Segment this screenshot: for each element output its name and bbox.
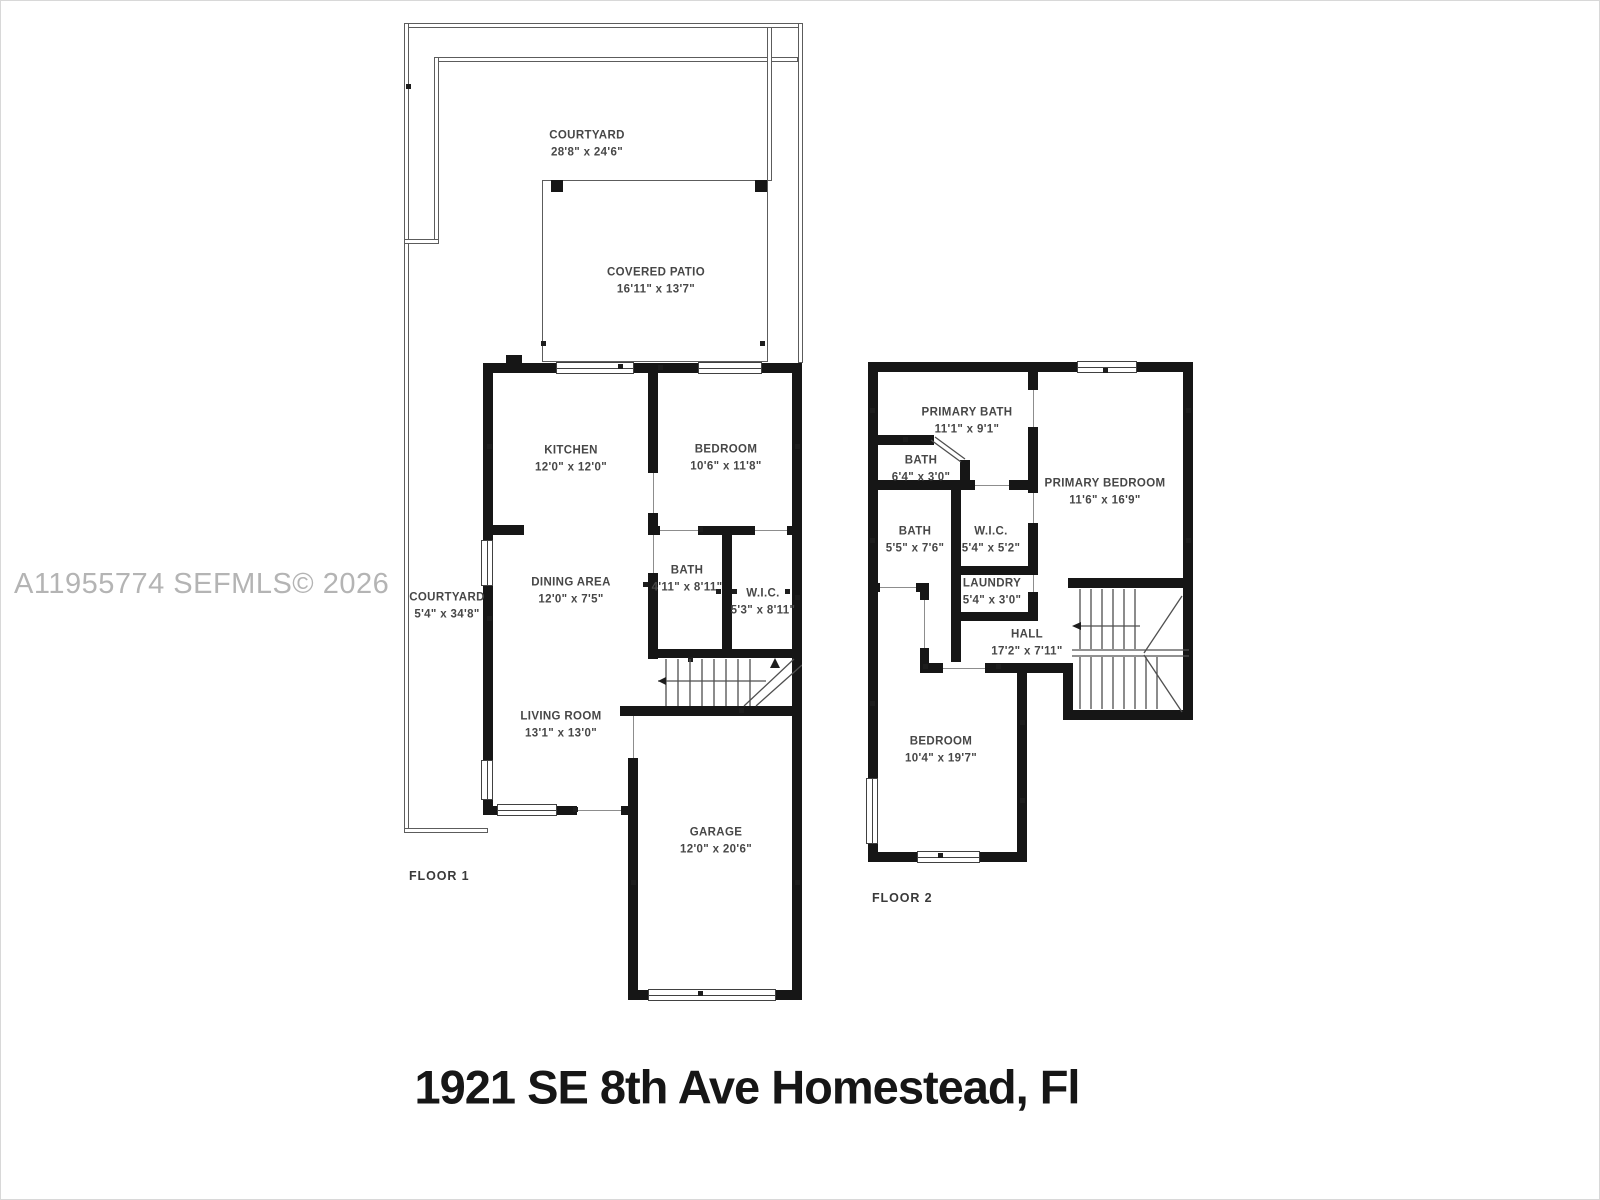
wall-segment (1068, 578, 1193, 588)
room-dims: 11'1" x 9'1" (922, 421, 1013, 438)
staircase-floor1 (656, 655, 802, 707)
door-opening (627, 716, 639, 758)
patio-post (755, 180, 767, 192)
wall-segment (506, 355, 522, 364)
room-label-kitchen: KITCHEN 12'0" x 12'0" (535, 442, 607, 475)
room-name: GARAGE (680, 824, 752, 841)
wall-segment (1028, 362, 1038, 390)
room-dims: 12'0" x 12'0" (535, 459, 607, 476)
room-dims: 17'2" x 7'11" (991, 643, 1062, 660)
wall-tick (903, 437, 908, 442)
room-label-primary-bath: PRIMARY BATH 11'1" x 9'1" (922, 404, 1013, 437)
wall-segment (792, 716, 802, 1000)
room-label-courtyard-side: COURTYARD 5'4" x 34'8" (409, 589, 485, 622)
wall-tick (618, 364, 623, 369)
room-dims: 5'4" x 34'8" (409, 606, 485, 623)
wall-tick (487, 616, 492, 621)
wall-tick (406, 84, 411, 89)
room-dims: 6'4" x 3'0" (892, 469, 951, 486)
window (866, 778, 878, 844)
door-opening (1027, 390, 1039, 427)
room-name: COURTYARD (409, 589, 485, 606)
wall-segment (1017, 663, 1027, 862)
room-label-bath-upper: BATH 6'4" x 3'0" (892, 452, 951, 485)
wall-segment (1028, 427, 1038, 493)
wall-tick (760, 341, 765, 346)
fence-line (404, 23, 409, 833)
wall-tick (870, 408, 875, 413)
room-dims: 5'5" x 7'6" (886, 540, 945, 557)
wall-tick (938, 853, 943, 858)
room-dims: 5'4" x 5'2" (962, 540, 1021, 557)
wall-tick (1186, 408, 1191, 413)
room-label-primary-bedroom: PRIMARY BEDROOM 11'6" x 16'9" (1045, 475, 1166, 508)
mls-watermark: A11955774 SEFMLS© 2026 (14, 568, 389, 601)
wall-tick (487, 444, 492, 449)
room-label-living-room: LIVING ROOM 13'1" x 13'0" (520, 708, 601, 741)
room-name: KITCHEN (535, 442, 607, 459)
patio-post (551, 180, 563, 192)
room-dims: 13'1" x 13'0" (520, 725, 601, 742)
room-name: LAUNDRY (963, 575, 1022, 592)
floor1-label: FLOOR 1 (409, 869, 469, 883)
room-name: BATH (652, 562, 723, 579)
room-dims: 12'0" x 20'6" (680, 841, 752, 858)
wall-tick (541, 341, 546, 346)
room-label-bedroom-f2: BEDROOM 10'4" x 19'7" (905, 733, 977, 766)
room-name: LIVING ROOM (520, 708, 601, 725)
room-label-bath-f2: BATH 5'5" x 7'6" (886, 523, 945, 556)
wall-segment (486, 525, 524, 535)
room-name: DINING AREA (531, 574, 610, 591)
wall-tick (643, 582, 648, 587)
window (648, 989, 776, 1001)
floorplan-canvas: COURTYARD 28'8" x 24'6" COVERED PATIO 16… (0, 0, 1600, 1200)
room-label-laundry: LAUNDRY 5'4" x 3'0" (963, 575, 1022, 608)
wall-tick (870, 701, 875, 706)
room-label-hall: HALL 17'2" x 7'11" (991, 626, 1062, 659)
room-name: HALL (991, 626, 1062, 643)
room-dims: 12'0" x 7'5" (531, 591, 610, 608)
room-label-dining-area: DINING AREA 12'0" x 7'5" (531, 574, 610, 607)
wall-tick (795, 595, 800, 600)
fence-line (767, 27, 772, 181)
window (917, 851, 980, 863)
wall-tick (923, 664, 928, 669)
wall-segment (951, 480, 961, 670)
room-dims: 11'6" x 16'9" (1045, 492, 1166, 509)
staircase-floor2 (1068, 588, 1193, 720)
fence-line (434, 57, 439, 244)
fence-line (798, 23, 803, 363)
wall-tick (1020, 798, 1025, 803)
door-opening (1027, 575, 1039, 592)
wall-tick (1103, 368, 1108, 373)
window (481, 760, 493, 800)
room-label-garage: GARAGE 12'0" x 20'6" (680, 824, 752, 857)
room-name: BATH (892, 452, 951, 469)
window (497, 804, 557, 816)
door-opening (975, 479, 1009, 491)
room-dims: 28'8" x 24'6" (549, 144, 625, 161)
door-opening (660, 525, 698, 536)
door-opening (577, 805, 621, 816)
door-opening (880, 582, 916, 593)
wall-segment (960, 566, 1028, 575)
room-label-bath-f1: BATH 4'11" x 8'11" (652, 562, 723, 595)
window (698, 362, 762, 374)
wall-tick (573, 807, 578, 812)
wall-segment (951, 612, 1038, 621)
fence-line (404, 239, 439, 244)
wall-tick (795, 880, 800, 885)
room-name: BEDROOM (690, 441, 761, 458)
floor2-label: FLOOR 2 (872, 891, 932, 905)
room-dims: 10'6" x 11'8" (690, 458, 761, 475)
room-name: COURTYARD (549, 127, 625, 144)
room-name: PRIMARY BEDROOM (1045, 475, 1166, 492)
wall-segment (1028, 523, 1038, 575)
door-opening (755, 525, 787, 536)
room-label-wic-f2: W.I.C. 5'4" x 5'2" (962, 523, 1021, 556)
wall-tick (698, 991, 703, 996)
room-label-wic-f1: W.I.C. 5'3" x 8'11" (731, 585, 796, 618)
room-label-bedroom-f1: BEDROOM 10'6" x 11'8" (690, 441, 761, 474)
room-name: BATH (886, 523, 945, 540)
wall-tick (795, 444, 800, 449)
room-name: PRIMARY BATH (922, 404, 1013, 421)
room-name: COVERED PATIO (607, 264, 705, 281)
wall-tick (698, 527, 703, 532)
door-opening (647, 473, 659, 513)
wall-tick (1186, 538, 1191, 543)
wall-tick (658, 365, 663, 370)
address-title: 1921 SE 8th Ave Homestead, Fl (415, 1060, 1080, 1115)
wall-segment (620, 706, 802, 716)
wall-tick (996, 664, 1001, 669)
room-dims: 5'4" x 3'0" (963, 592, 1022, 609)
room-dims: 5'3" x 8'11" (731, 602, 796, 619)
fence-line (434, 57, 798, 62)
window (481, 540, 493, 586)
room-dims: 10'4" x 19'7" (905, 750, 977, 767)
door-opening (943, 662, 985, 674)
wall-tick (1020, 720, 1025, 725)
door-opening (1027, 493, 1039, 523)
room-name: W.I.C. (731, 585, 796, 602)
wall-segment (1028, 592, 1038, 602)
wall-tick (739, 708, 744, 713)
fence-line (404, 23, 803, 28)
wall-tick (870, 538, 875, 543)
room-label-covered-patio: COVERED PATIO 16'11" x 13'7" (607, 264, 705, 297)
room-dims: 16'11" x 13'7" (607, 281, 705, 298)
room-name: BEDROOM (905, 733, 977, 750)
wall-segment (1028, 602, 1038, 620)
fence-line (404, 828, 488, 833)
wall-segment (628, 716, 638, 1000)
room-label-courtyard-top: COURTYARD 28'8" x 24'6" (549, 127, 625, 160)
wall-tick (631, 880, 636, 885)
room-dims: 4'11" x 8'11" (652, 579, 723, 596)
door-opening (919, 600, 930, 648)
room-name: W.I.C. (962, 523, 1021, 540)
